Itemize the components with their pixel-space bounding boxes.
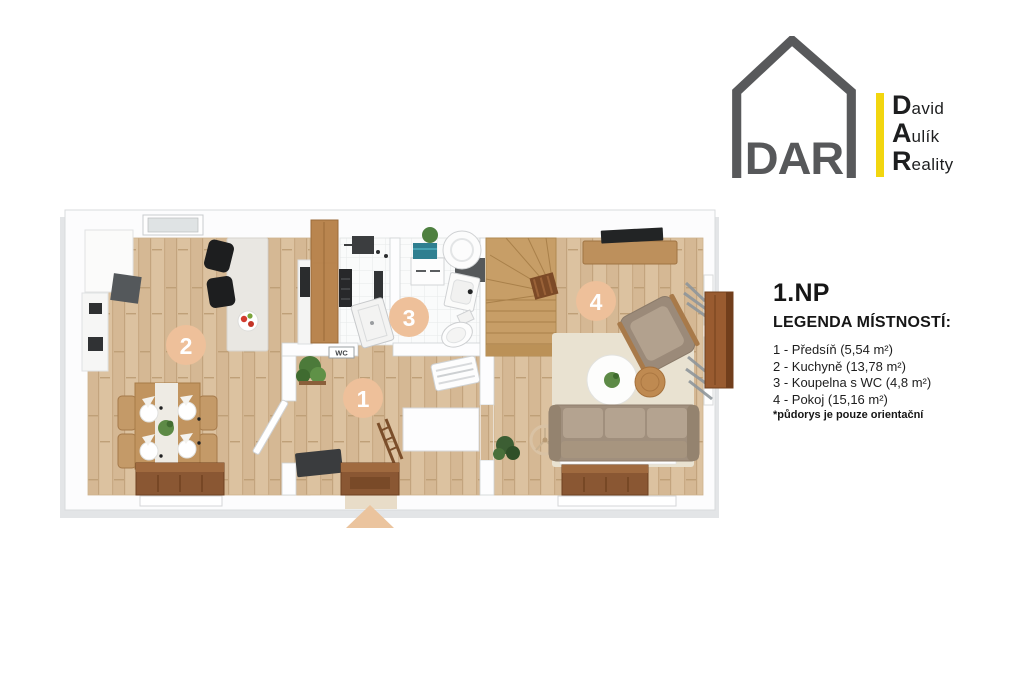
plant-leaf-detail — [613, 373, 619, 379]
fruit-bowl — [238, 311, 258, 331]
living-wall-lower — [480, 460, 494, 495]
logo-company-name: David Aulík Reality — [892, 90, 954, 174]
wc-sign-label: WC — [335, 349, 348, 358]
dining-chair-2 — [118, 434, 136, 468]
bathroom-sink — [444, 272, 480, 311]
hall-plant-leaf-2 — [296, 369, 310, 383]
logo-line-aulik: Aulík — [892, 118, 954, 146]
living-planter-edge — [562, 465, 648, 473]
fruit-red-2 — [248, 321, 254, 327]
legend-room-1: 1 - Předsíň (5,54 m²) — [773, 343, 1008, 356]
planter-top-edge — [136, 463, 224, 472]
logo-line-reality: Reality — [892, 146, 954, 174]
cooktop — [300, 267, 310, 297]
plate-2 — [178, 402, 196, 420]
cutlery-dot-2 — [197, 417, 200, 420]
kitchen-window-glass — [148, 218, 198, 232]
logo-initial: R — [892, 146, 912, 177]
logo-monogram: DAR — [745, 133, 844, 178]
bench-inner — [350, 477, 390, 489]
cutlery-dot-3 — [159, 454, 162, 457]
floor-title: 1.NP — [773, 281, 1008, 306]
legend-room-3: 3 - Koupelna s WC (4,8 m²) — [773, 376, 1008, 389]
kitchen-hall-wall-lower — [282, 463, 296, 495]
bar-stool-2 — [206, 275, 236, 309]
cutlery-dot-4 — [197, 441, 200, 444]
staircase — [486, 238, 558, 356]
logo-rest: avid — [912, 99, 945, 119]
dining-window — [140, 496, 222, 506]
table-plant-leaf — [167, 421, 174, 428]
legend-heading: LEGENDA MÍSTNOSTÍ: — [773, 314, 1008, 332]
badge-room-2-number: 2 — [180, 333, 193, 359]
floorplan: WC — [60, 205, 750, 540]
bench-top-edge — [341, 463, 399, 472]
logo-accent-bar — [876, 93, 884, 177]
faucet-dot-2 — [384, 254, 388, 258]
logo-house-icon: DAR — [728, 36, 860, 178]
faucet-dot-1 — [376, 250, 380, 254]
logo-initial: D — [892, 90, 912, 121]
fruit-red — [241, 316, 247, 322]
sofa — [549, 405, 699, 461]
plate-4 — [178, 440, 196, 458]
stair-landing — [486, 345, 556, 356]
logo-rest: ulík — [912, 127, 940, 147]
kitchen-sink — [89, 303, 102, 314]
bathroom-hall-wall-right — [393, 343, 485, 356]
water-boiler — [443, 231, 481, 269]
logo-line-david: David — [892, 90, 954, 118]
logo-rest: eality — [912, 155, 954, 175]
tv-sideboard — [583, 241, 677, 264]
cutlery-dot-1 — [159, 406, 162, 409]
bathroom-mirror — [352, 236, 374, 254]
towel-radiator — [339, 269, 352, 307]
fruit-green — [247, 313, 252, 318]
legend-footnote: *půdorys je pouze orientační — [773, 409, 1008, 421]
legend-room-list: 1 - Předsíň (5,54 m²) 2 - Kuchyně (13,78… — [773, 343, 1008, 406]
kitchen-appliance — [110, 273, 141, 304]
logo-initial: A — [892, 118, 912, 149]
living-door-opening — [481, 405, 493, 460]
entrance-doormat — [295, 449, 343, 478]
badge-room-3-number: 3 — [403, 305, 416, 331]
side-table — [635, 367, 665, 397]
teal-towels — [413, 243, 437, 259]
wardrobe-side — [726, 292, 733, 388]
legend-room-4: 4 - Pokoj (15,16 m²) — [773, 393, 1008, 406]
plate-3 — [140, 442, 158, 460]
dining-chair-1 — [118, 396, 136, 430]
room-legend: 1.NP LEGENDA MÍSTNOSTÍ: 1 - Předsíň (5,5… — [773, 281, 1008, 421]
kitchen-hob — [88, 337, 103, 351]
plant-stand — [299, 381, 326, 385]
bathroom-plant — [422, 227, 438, 243]
dining-chair-3 — [199, 396, 217, 430]
badge-room-1-number: 1 — [357, 386, 370, 412]
hall-plant-leaf-1 — [310, 367, 326, 383]
badge-room-4-number: 4 — [590, 289, 603, 315]
plate-1 — [140, 404, 158, 422]
legend-room-2: 2 - Kuchyně (13,78 m²) — [773, 360, 1008, 373]
living-window — [558, 496, 676, 506]
hall-wardrobe-panel — [403, 408, 479, 451]
